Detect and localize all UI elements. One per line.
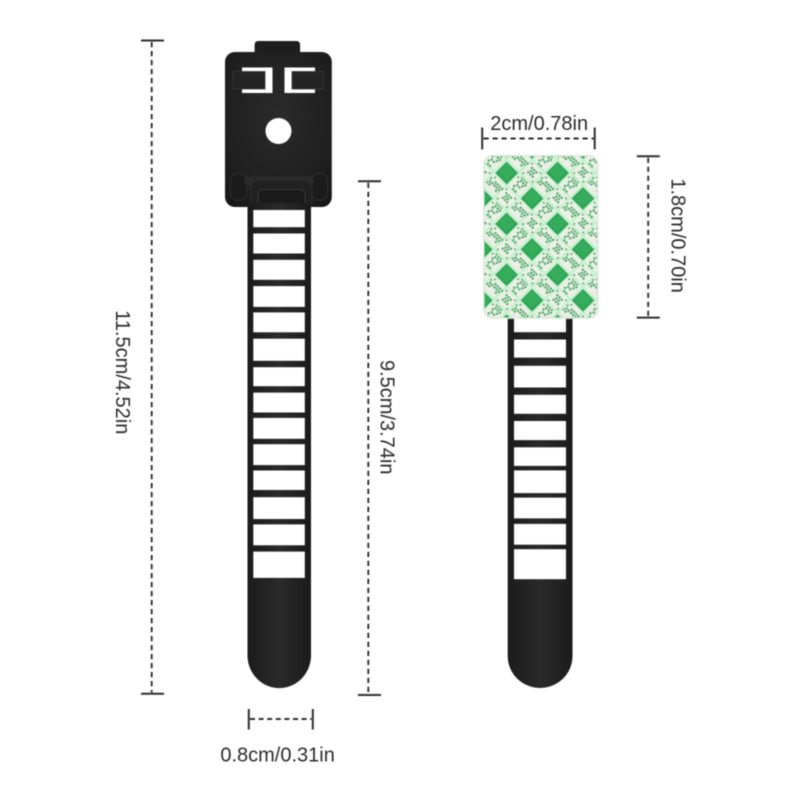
- svg-text:0.8cm/0.31in: 0.8cm/0.31in: [220, 745, 335, 767]
- svg-text:11.5cm/4.52in: 11.5cm/4.52in: [111, 310, 133, 434]
- svg-text:2cm/0.78in: 2cm/0.78in: [490, 113, 588, 135]
- svg-text:1.8cm/0.70in: 1.8cm/0.70in: [667, 178, 689, 293]
- svg-text:9.5cm/3.74in: 9.5cm/3.74in: [375, 360, 397, 475]
